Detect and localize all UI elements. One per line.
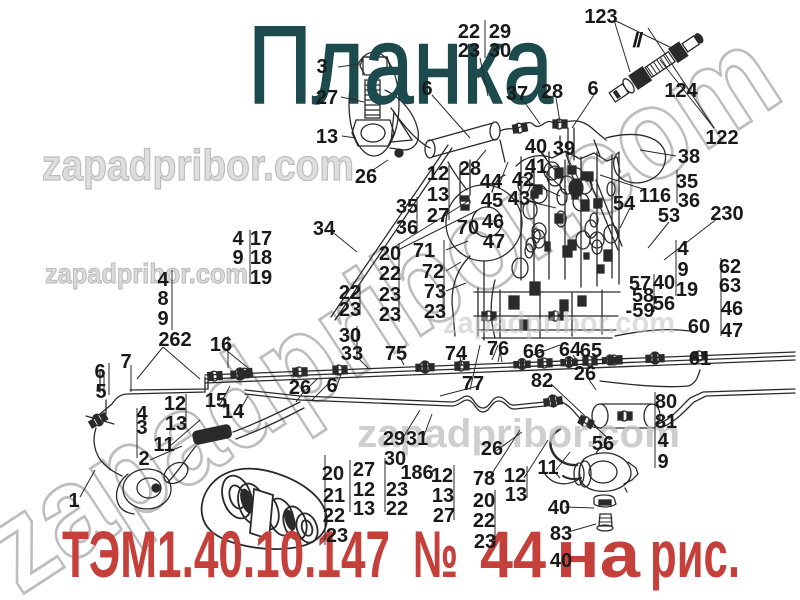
- svg-text:zapadpribor.com: zapadpribor.com: [42, 141, 354, 190]
- svg-text:73: 73: [424, 281, 446, 303]
- svg-text:рис.: рис.: [650, 517, 740, 591]
- svg-text:23: 23: [339, 299, 361, 321]
- svg-text:27: 27: [433, 505, 455, 527]
- svg-text:№: №: [413, 517, 458, 591]
- svg-text:29: 29: [383, 428, 405, 450]
- svg-text:27: 27: [353, 459, 375, 481]
- svg-text:5: 5: [95, 381, 106, 403]
- svg-text:4: 4: [657, 430, 669, 452]
- svg-text:20: 20: [322, 463, 344, 485]
- svg-text:60: 60: [688, 316, 710, 338]
- svg-text:122: 122: [705, 127, 738, 149]
- svg-text:77: 77: [462, 373, 484, 395]
- svg-text:262: 262: [158, 329, 191, 351]
- svg-text:124: 124: [664, 80, 698, 102]
- svg-text:20: 20: [473, 490, 495, 512]
- svg-text:37: 37: [506, 83, 528, 105]
- svg-text:36: 36: [396, 217, 418, 239]
- svg-text:70: 70: [457, 217, 479, 239]
- svg-text:9: 9: [677, 259, 688, 281]
- svg-text:19: 19: [250, 267, 272, 289]
- svg-text:56: 56: [653, 293, 675, 315]
- svg-text:1: 1: [68, 490, 79, 512]
- svg-text:13: 13: [505, 484, 527, 506]
- svg-text:53: 53: [658, 205, 680, 227]
- svg-text:72: 72: [422, 261, 444, 283]
- svg-text:40: 40: [548, 497, 570, 519]
- svg-text:9: 9: [657, 451, 668, 473]
- svg-text:13: 13: [432, 485, 454, 507]
- svg-text:13: 13: [165, 413, 187, 435]
- svg-text:13: 13: [427, 184, 449, 206]
- svg-text:19: 19: [676, 279, 698, 301]
- svg-text:80: 80: [655, 391, 677, 413]
- svg-text:6: 6: [587, 78, 598, 100]
- svg-text:54: 54: [613, 193, 636, 215]
- svg-text:23: 23: [424, 301, 446, 323]
- svg-text:56: 56: [592, 433, 614, 455]
- svg-text:30: 30: [339, 325, 361, 347]
- svg-text:12: 12: [427, 163, 449, 185]
- svg-text:12: 12: [431, 465, 453, 487]
- svg-text:75: 75: [385, 343, 407, 365]
- svg-text:83: 83: [550, 523, 572, 545]
- svg-text:123: 123: [584, 6, 617, 28]
- svg-text:23: 23: [326, 525, 348, 547]
- svg-text:6: 6: [421, 78, 432, 100]
- svg-text:23: 23: [474, 531, 496, 553]
- svg-text:46: 46: [721, 298, 743, 320]
- svg-text:22: 22: [386, 498, 408, 520]
- svg-text:66: 66: [523, 341, 545, 363]
- svg-text:9: 9: [157, 308, 168, 330]
- svg-text:4: 4: [677, 238, 689, 260]
- svg-text:27: 27: [316, 87, 338, 109]
- svg-text:18: 18: [250, 247, 272, 269]
- svg-text:35: 35: [396, 196, 418, 218]
- svg-text:-59: -59: [626, 300, 655, 322]
- svg-text:22: 22: [473, 510, 495, 532]
- svg-text:46: 46: [482, 211, 504, 233]
- svg-text:23: 23: [379, 284, 401, 306]
- svg-text:23: 23: [458, 40, 480, 62]
- svg-text:11: 11: [153, 434, 174, 456]
- svg-text:45: 45: [481, 190, 503, 212]
- svg-text:11: 11: [537, 457, 558, 479]
- svg-text:230: 230: [710, 203, 743, 225]
- svg-text:34: 34: [313, 218, 336, 240]
- svg-text:47: 47: [721, 320, 743, 342]
- svg-text:38: 38: [678, 146, 700, 168]
- svg-text:30: 30: [489, 40, 511, 62]
- svg-text:36: 36: [678, 190, 700, 212]
- svg-text:6: 6: [94, 361, 105, 383]
- svg-text:3: 3: [136, 417, 147, 439]
- svg-text:zapadpribor.com: zapadpribor.com: [45, 258, 248, 289]
- svg-text:3: 3: [316, 56, 327, 78]
- svg-text:31: 31: [406, 428, 428, 450]
- svg-text:26: 26: [289, 377, 311, 399]
- svg-text:61: 61: [689, 348, 711, 370]
- svg-text:21: 21: [323, 485, 345, 507]
- svg-text:6: 6: [326, 375, 337, 397]
- svg-text:39: 39: [553, 138, 575, 160]
- svg-text:27: 27: [427, 205, 449, 227]
- svg-text:8: 8: [157, 288, 168, 310]
- svg-text:43: 43: [508, 188, 530, 210]
- svg-text:47: 47: [483, 231, 505, 253]
- svg-text:23: 23: [379, 304, 401, 326]
- svg-text:65: 65: [580, 340, 602, 362]
- svg-text:2: 2: [138, 448, 149, 470]
- svg-text:74: 74: [445, 343, 468, 365]
- svg-text:13: 13: [353, 498, 375, 520]
- svg-text:40: 40: [550, 550, 572, 572]
- svg-text:14: 14: [222, 401, 245, 423]
- svg-text:26: 26: [574, 363, 596, 385]
- svg-text:28: 28: [541, 81, 563, 103]
- svg-text:82: 82: [531, 370, 553, 392]
- svg-text:9: 9: [232, 247, 243, 269]
- svg-text:116: 116: [639, 185, 671, 207]
- svg-text:20: 20: [379, 243, 401, 265]
- svg-text:63: 63: [719, 275, 741, 297]
- svg-text:26: 26: [481, 438, 503, 460]
- svg-text:22: 22: [379, 263, 401, 285]
- svg-text:76: 76: [487, 338, 509, 360]
- svg-text:64: 64: [559, 339, 582, 361]
- svg-text:7: 7: [120, 351, 131, 373]
- svg-text:40: 40: [653, 272, 675, 294]
- svg-text:28: 28: [459, 158, 481, 180]
- svg-text:13: 13: [316, 126, 338, 148]
- svg-text:26: 26: [355, 166, 377, 188]
- svg-text:12: 12: [164, 393, 186, 415]
- svg-text:71: 71: [413, 240, 435, 262]
- svg-text:78: 78: [473, 468, 495, 490]
- svg-text:22: 22: [323, 505, 345, 527]
- svg-text:16: 16: [210, 334, 232, 356]
- svg-text:40: 40: [525, 136, 547, 158]
